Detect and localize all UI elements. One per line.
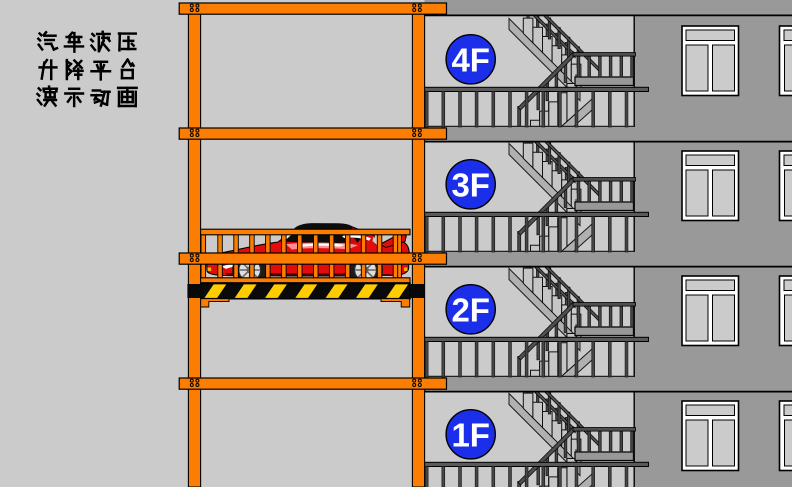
svg-text:3F: 3F (451, 166, 490, 203)
svg-text:2F: 2F (451, 291, 490, 328)
svg-text:4F: 4F (451, 41, 490, 78)
svg-text:1F: 1F (451, 416, 490, 453)
